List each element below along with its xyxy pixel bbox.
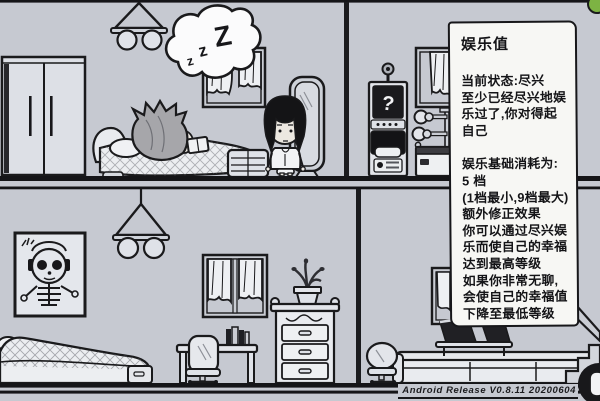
status-line: 至少已经尽兴地娱: [461, 89, 566, 106]
detail-line: 娱乐基础消耗为:: [462, 156, 567, 173]
window-lower: [203, 255, 267, 317]
detail-line: 额外修正效果: [462, 206, 567, 223]
status-line: 乐过了,你对得起: [461, 106, 566, 123]
detail-line: (1档最小,9档最大): [462, 189, 567, 206]
status-line: 当前状态:尽兴: [461, 73, 566, 90]
detail-line: 会使自己的幸福值: [463, 289, 568, 306]
book: [187, 137, 209, 154]
detail-line: 乐而使自己的幸福: [463, 239, 568, 256]
detail-line: 5 档: [462, 173, 567, 190]
girl-eye-right: [290, 130, 293, 133]
info-panel: 娱乐值 当前状态:尽兴 至少已经尽兴地娱 乐过了,你对得起 自己 娱乐基础消耗为…: [448, 20, 579, 327]
wardrobe[interactable]: [2, 57, 85, 175]
book1: [226, 329, 231, 345]
detail-line: 如果你非常无聊,: [463, 272, 568, 289]
book2: [232, 327, 238, 345]
room-divider-lower: [356, 189, 361, 383]
skeleton-picture: [15, 233, 85, 316]
office-chair-left[interactable]: [186, 336, 220, 384]
version-text: Android Release V0.8.11 20200604: [398, 384, 578, 399]
status-line: 自己: [462, 122, 567, 139]
detail-line: 你可以通过尽兴娱: [462, 222, 567, 239]
panel-status-paragraph: 当前状态:尽兴 至少已经尽兴地娱 乐过了,你对得起 自己: [461, 73, 567, 140]
girl-eye-left: [279, 130, 282, 133]
detail-line: 达到最高等级: [463, 256, 568, 273]
panel-detail-paragraph: 娱乐基础消耗为: 5 档 (1档最小,9档最大) 额外修正效果 你可以通过尽兴娱…: [462, 156, 568, 323]
room-divider-upper: [344, 2, 349, 178]
book3: [239, 330, 244, 345]
ceiling-line: [0, 0, 600, 3]
book4: [245, 332, 249, 345]
panel-title: 娱乐值: [461, 33, 566, 55]
thought-bubble: z z Z: [166, 5, 260, 77]
game-scene: z z Z ?: [0, 0, 600, 401]
detail-line: 下降至最低等级: [463, 305, 568, 322]
girl-character[interactable]: [264, 96, 305, 179]
